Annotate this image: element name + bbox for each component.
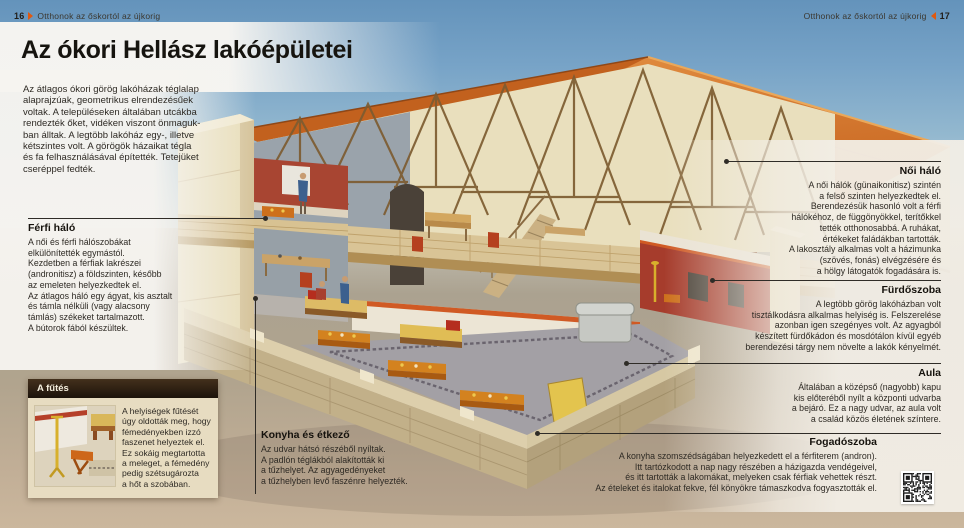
qr-code — [901, 471, 934, 504]
note-body: A női és férfi hálószobákat elkülönített… — [28, 237, 213, 333]
leader-dot-ferfi-halo — [263, 216, 268, 221]
running-title-left: Otthonok az őskortól az újkorig — [37, 11, 160, 21]
leader-dot-aula — [624, 361, 629, 366]
note-body: A legtöbb görög lakóházban volt tisztálk… — [699, 299, 941, 353]
note-title: Férfi háló — [28, 222, 213, 234]
note-title: Konyha és étkező — [261, 429, 456, 441]
leader-line-noi-halo — [726, 161, 941, 162]
leader-line-fogadoszoba — [537, 433, 941, 434]
page-number-left: 16 — [14, 11, 24, 21]
note-furdoszoba: Fürdőszoba A legtöbb görög lakóházban vo… — [699, 284, 941, 353]
leader-dot-fogadoszoba — [535, 431, 540, 436]
info-box-title: A fűtés — [28, 379, 218, 398]
leader-line-konyha — [255, 298, 256, 494]
note-title: Fogadószoba — [545, 436, 877, 448]
red-chair — [488, 232, 499, 248]
arrow-right-icon — [28, 12, 33, 20]
intro-paragraph: Az átlagos ókori görög lakóházak téglala… — [23, 84, 223, 175]
leader-line-ferfi-halo — [28, 218, 267, 219]
arrow-left-icon — [931, 12, 936, 20]
note-ferfi-halo: Férfi háló A női és férfi hálószobákat e… — [28, 222, 213, 333]
leader-dot-noi-halo — [724, 159, 729, 164]
stone-chest — [576, 303, 634, 342]
heating-brazier-image — [35, 406, 115, 486]
note-body: Általában a középső (nagyobb) kapu kis e… — [729, 382, 941, 425]
leader-line-aula — [626, 363, 941, 364]
leader-dot-konyha — [253, 296, 258, 301]
page-title: Az ókori Hellász lakóépületei — [21, 36, 353, 65]
note-title: Fürdőszoba — [699, 284, 941, 296]
page-number-right: 17 — [940, 11, 950, 21]
red-chair — [412, 236, 423, 252]
leader-line-furdoszoba — [712, 280, 941, 281]
running-header-left: 16Otthonok az őskortól az újkorig — [14, 11, 160, 21]
running-header-right: Otthonok az őskortól az újkorig17 — [804, 11, 950, 21]
red-chair — [300, 272, 312, 288]
note-noi-halo: Női háló A női hálók (günaikonitisz) szi… — [713, 165, 941, 276]
note-body: Az udvar hátsó részéből nyíltak. A padló… — [261, 444, 456, 487]
info-box-heating: A fűtés A helyiségek fűtését úgy oldottá — [28, 379, 218, 498]
note-body: A női hálók (günaikonitisz) szintén a fe… — [713, 180, 941, 276]
leader-dot-furdoszoba — [710, 278, 715, 283]
note-title: Aula — [729, 367, 941, 379]
note-body: A konyha szomszédságában helyezkedett el… — [545, 451, 877, 494]
note-fogadoszoba: Fogadószoba A konyha szomszédságában hel… — [545, 436, 877, 494]
note-aula: Aula Általában a középső (nagyobb) kapu … — [729, 367, 941, 425]
note-konyha: Konyha és étkező Az udvar hátsó részéből… — [261, 429, 456, 487]
note-title: Női háló — [713, 165, 941, 177]
book-spread: 16Otthonok az őskortól az újkorig Otthon… — [0, 0, 964, 528]
running-title-right: Otthonok az őskortól az újkorig — [804, 11, 927, 21]
info-box-body: A helyiségek fűtését úgy oldották meg, h… — [122, 406, 212, 489]
